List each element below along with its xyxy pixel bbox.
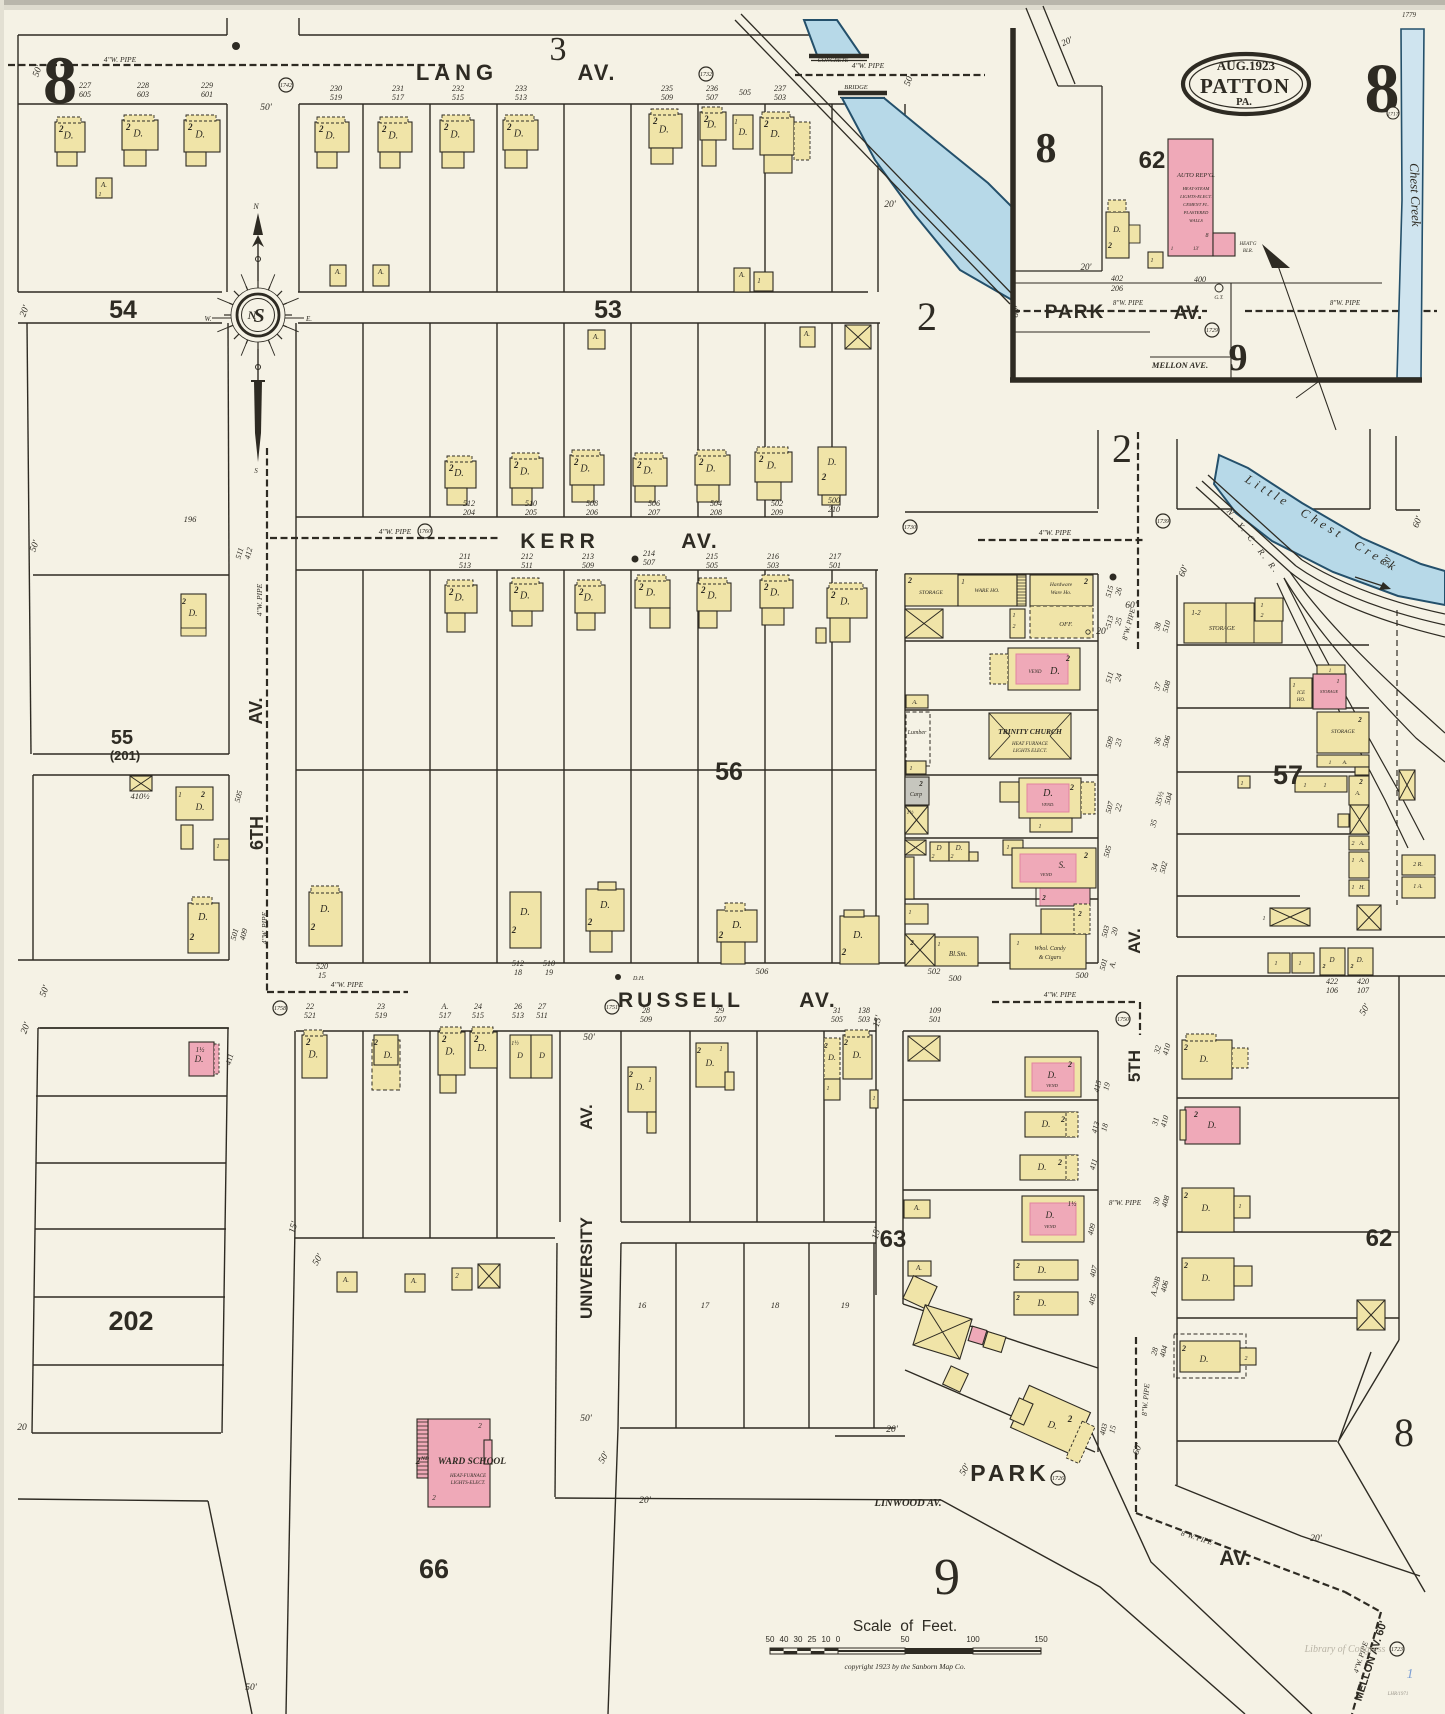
svg-text:20': 20' [884, 200, 897, 210]
svg-text:2: 2 [1083, 851, 1088, 860]
svg-text:D.: D. [1041, 1119, 1051, 1129]
svg-text:23: 23 [377, 1002, 385, 1011]
svg-text:N: N [247, 308, 258, 322]
svg-text:213: 213 [582, 552, 594, 561]
svg-text:2: 2 [189, 932, 195, 942]
svg-text:519: 519 [375, 1011, 387, 1020]
svg-text:2 R.: 2 R. [1413, 862, 1423, 868]
svg-text:500: 500 [1076, 970, 1090, 980]
svg-text:ND: ND [420, 1456, 429, 1462]
svg-text:2: 2 [318, 124, 324, 134]
svg-text:1½: 1½ [196, 1046, 206, 1054]
svg-text:HO.: HO. [1296, 698, 1305, 703]
svg-text:505: 505 [831, 1015, 843, 1024]
svg-text:Hardware: Hardware [1049, 582, 1073, 588]
svg-text:D.: D. [454, 593, 465, 604]
svg-text:10: 10 [822, 1635, 831, 1644]
svg-text:AV.: AV. [1174, 303, 1203, 324]
svg-text:237: 237 [774, 84, 787, 93]
svg-text:517: 517 [392, 93, 405, 102]
svg-text:504: 504 [710, 499, 722, 508]
svg-text:4"W. PIPE: 4"W. PIPE [1039, 528, 1072, 537]
svg-text:D.: D. [955, 844, 963, 852]
svg-text:196: 196 [184, 514, 198, 524]
svg-text:LIGHTS-ELECT.: LIGHTS-ELECT. [450, 1481, 486, 1486]
svg-text:D.: D. [1199, 1354, 1209, 1364]
svg-text:W.: W. [205, 315, 212, 323]
svg-text:20': 20' [1096, 627, 1109, 637]
svg-text:N: N [252, 202, 259, 211]
svg-text:1: 1 [648, 1076, 652, 1084]
svg-text:D.: D. [1042, 788, 1053, 799]
svg-text:2: 2 [1077, 910, 1082, 918]
svg-text:1: 1 [1241, 781, 1244, 787]
svg-text:400: 400 [1194, 275, 1206, 284]
svg-text:2: 2 [932, 854, 935, 860]
svg-text:2: 2 [415, 1456, 421, 1466]
svg-text:1: 1 [757, 277, 761, 285]
svg-text:H.: H. [1358, 885, 1365, 891]
svg-text:ICE: ICE [1296, 691, 1305, 696]
svg-text:2: 2 [1183, 1261, 1188, 1270]
svg-text:HEAT-FURNACE: HEAT-FURNACE [449, 1474, 486, 1479]
svg-text:1-2: 1-2 [1191, 609, 1201, 617]
svg-text:1: 1 [1407, 1667, 1414, 1682]
svg-text:601: 601 [201, 90, 213, 99]
svg-text:D.: D. [1047, 1070, 1057, 1080]
svg-text:1: 1 [1039, 824, 1042, 830]
svg-text:2: 2 [763, 582, 769, 592]
svg-text:CONCRETE: CONCRETE [818, 58, 849, 64]
svg-text:506: 506 [756, 966, 770, 976]
svg-text:1: 1 [1007, 845, 1010, 851]
svg-text:2: 2 [1013, 624, 1016, 630]
svg-text:1: 1 [873, 1096, 876, 1102]
svg-text:233: 233 [515, 84, 527, 93]
svg-text:205: 205 [525, 508, 537, 517]
svg-text:BRIDGE: BRIDGE [844, 84, 867, 91]
svg-text:D.: D. [387, 131, 398, 142]
svg-text:LIGHTS-ELECT.: LIGHTS-ELECT. [1179, 194, 1212, 199]
svg-text:2: 2 [187, 122, 193, 132]
svg-text:D.: D. [1037, 1298, 1047, 1308]
svg-text:20: 20 [17, 1423, 27, 1433]
svg-text:D.: D. [583, 593, 594, 604]
svg-text:A.: A. [1358, 841, 1364, 847]
svg-text:1: 1 [1151, 258, 1154, 264]
svg-text:501: 501 [929, 1015, 941, 1024]
svg-text:2: 2 [310, 922, 316, 932]
svg-text:1: 1 [938, 942, 941, 948]
svg-text:513: 513 [515, 93, 527, 102]
svg-text:D.: D. [658, 124, 669, 135]
svg-text:D.: D. [738, 127, 748, 137]
svg-text:0: 0 [836, 1635, 841, 1644]
svg-text:2: 2 [1067, 1414, 1073, 1424]
svg-text:4"W. PIPE: 4"W. PIPE [104, 55, 137, 64]
svg-text:2: 2 [1358, 778, 1363, 786]
svg-text:1717: 1717 [1388, 112, 1399, 118]
svg-text:copyright 1923 by the Sanborn: copyright 1923 by the Sanborn Map Co. [844, 1662, 965, 1671]
svg-text:6TH: 6TH [247, 816, 267, 850]
svg-text:232: 232 [452, 84, 464, 93]
svg-text:1½: 1½ [1068, 1200, 1078, 1208]
svg-text:1: 1 [1013, 613, 1016, 619]
svg-text:230: 230 [330, 84, 342, 93]
svg-text:2: 2 [441, 1034, 447, 1044]
svg-text:505: 505 [739, 88, 751, 97]
svg-text:505: 505 [706, 561, 718, 570]
svg-text:513: 513 [512, 1011, 524, 1020]
svg-text:605: 605 [79, 90, 91, 99]
svg-text:503: 503 [858, 1015, 870, 1024]
svg-text:207: 207 [648, 508, 661, 517]
svg-text:1: 1 [734, 118, 738, 126]
svg-text:D.: D. [132, 129, 143, 140]
svg-text:15: 15 [318, 971, 326, 980]
svg-text:202: 202 [108, 1306, 153, 1336]
svg-text:420: 420 [1357, 977, 1369, 986]
svg-text:TRINITY CHURCH: TRINITY CHURCH [998, 727, 1063, 736]
svg-text:1751: 1751 [606, 1005, 618, 1011]
svg-text:D.: D. [519, 467, 530, 478]
svg-text:54: 54 [109, 296, 137, 324]
svg-text:25: 25 [808, 1635, 817, 1644]
svg-text:8: 8 [43, 42, 77, 118]
svg-text:26: 26 [514, 1002, 522, 1011]
svg-text:D.: D. [705, 1058, 715, 1068]
svg-text:LINWOOD AV.: LINWOOD AV. [874, 1498, 942, 1509]
svg-text:503: 503 [774, 93, 786, 102]
svg-text:107: 107 [1357, 986, 1370, 995]
svg-text:501: 501 [829, 561, 841, 570]
svg-text:2: 2 [443, 122, 449, 132]
svg-text:1732: 1732 [700, 72, 712, 78]
svg-text:2: 2 [951, 854, 954, 860]
svg-text:D.: D. [766, 461, 777, 472]
svg-text:STORAGE: STORAGE [919, 590, 943, 596]
svg-text:402: 402 [1111, 274, 1123, 283]
svg-text:2: 2 [513, 460, 519, 470]
svg-text:55: 55 [111, 727, 133, 749]
svg-text:228: 228 [137, 81, 149, 90]
svg-text:1729: 1729 [1206, 328, 1218, 334]
svg-text:Library of Congress: Library of Congress [1304, 1644, 1386, 1655]
svg-text:24: 24 [474, 1002, 482, 1011]
svg-text:206: 206 [1111, 284, 1123, 293]
svg-text:LIGHTS ELECT.: LIGHTS ELECT. [1012, 749, 1047, 754]
svg-text:AUG.1923: AUG.1923 [1217, 58, 1276, 73]
svg-text:506: 506 [648, 499, 660, 508]
svg-text:D.: D. [1037, 1265, 1047, 1275]
svg-text:57: 57 [1273, 760, 1303, 790]
svg-text:2: 2 [1107, 241, 1112, 250]
svg-text:2: 2 [917, 294, 937, 339]
svg-text:2: 2 [1060, 1115, 1065, 1124]
svg-text:D.: D. [1201, 1203, 1211, 1213]
svg-text:502: 502 [771, 499, 783, 508]
svg-text:D.: D. [1046, 1419, 1059, 1432]
svg-text:63: 63 [880, 1226, 907, 1253]
svg-text:D.: D. [839, 597, 850, 608]
svg-text:2: 2 [1065, 654, 1070, 663]
svg-text:2: 2 [1041, 894, 1046, 902]
svg-text:A.: A. [1354, 791, 1360, 797]
svg-text:512: 512 [463, 499, 475, 508]
svg-text:150: 150 [1034, 1635, 1048, 1644]
svg-text:D.: D. [769, 588, 780, 599]
svg-text:WARE HO.: WARE HO. [975, 588, 1000, 594]
svg-text:62: 62 [1366, 1225, 1393, 1252]
svg-text:D.: D. [513, 129, 524, 140]
svg-text:2: 2 [918, 780, 923, 788]
svg-text:509: 509 [582, 561, 594, 570]
svg-text:D.: D. [1112, 225, 1121, 234]
svg-text:521: 521 [304, 1011, 316, 1020]
svg-text:1: 1 [1352, 885, 1355, 891]
svg-text:512: 512 [512, 959, 524, 968]
svg-text:AV.: AV. [1125, 928, 1144, 954]
svg-text:2: 2 [1069, 783, 1074, 792]
svg-text:40: 40 [780, 1635, 789, 1644]
svg-text:D.: D. [449, 129, 460, 140]
svg-text:2: 2 [1015, 1294, 1020, 1302]
svg-text:1: 1 [827, 1086, 830, 1092]
svg-text:A.: A. [911, 699, 918, 706]
svg-text:D: D [935, 844, 941, 852]
svg-text:206: 206 [586, 508, 598, 517]
svg-text:30: 30 [794, 1635, 803, 1644]
svg-text:G.T.: G.T. [1214, 295, 1223, 301]
svg-text:CEMENT FL.: CEMENT FL. [1183, 202, 1209, 207]
svg-text:50': 50' [245, 1683, 258, 1693]
svg-text:2: 2 [511, 925, 517, 935]
svg-text:2: 2 [1181, 1344, 1186, 1353]
svg-text:A.: A. [410, 1277, 417, 1285]
svg-text:502: 502 [928, 966, 942, 976]
svg-text:D.: D. [476, 1043, 487, 1054]
svg-text:2: 2 [628, 1070, 633, 1079]
svg-text:2: 2 [125, 122, 131, 132]
svg-text:AV.: AV. [1219, 1547, 1251, 1570]
svg-text:210: 210 [828, 505, 840, 514]
svg-text:2: 2 [448, 587, 454, 597]
svg-text:2: 2 [638, 582, 644, 592]
svg-text:VEND: VEND [1040, 872, 1052, 877]
svg-text:2: 2 [763, 119, 769, 129]
svg-text:5TH: 5TH [1125, 1050, 1144, 1082]
svg-text:1: 1 [1171, 247, 1174, 252]
svg-text:PLASTERED: PLASTERED [1183, 210, 1209, 215]
svg-text:1: 1 [1017, 941, 1020, 947]
svg-text:1: 1 [1352, 858, 1355, 864]
svg-text:500: 500 [828, 496, 840, 505]
svg-text:1: 1 [910, 766, 913, 772]
svg-text:13': 13' [1193, 247, 1200, 252]
svg-text:D.: D. [444, 1046, 455, 1057]
svg-text:2: 2 [696, 1046, 701, 1055]
svg-text:4"W. PIPE: 4"W. PIPE [255, 583, 264, 616]
svg-text:2: 2 [478, 1422, 482, 1430]
svg-text:8"W. PIPE: 8"W. PIPE [1113, 299, 1144, 307]
svg-text:4"W. PIPE: 4"W. PIPE [1044, 990, 1077, 999]
svg-text:2: 2 [200, 790, 205, 799]
svg-text:A.: A. [915, 1264, 922, 1272]
svg-text:2: 2 [1112, 426, 1132, 471]
svg-text:1: 1 [1293, 683, 1296, 689]
svg-text:1: 1 [217, 844, 220, 850]
svg-text:215: 215 [706, 552, 718, 561]
svg-text:208: 208 [710, 508, 722, 517]
svg-text:1: 1 [909, 910, 912, 916]
svg-text:A.: A. [803, 330, 810, 338]
svg-text:D.: D. [645, 588, 656, 599]
svg-text:AV.: AV. [799, 989, 837, 1012]
svg-text:STORAGE: STORAGE [1320, 689, 1339, 694]
svg-text:2: 2 [1357, 716, 1362, 724]
svg-text:1750: 1750 [1117, 1017, 1129, 1023]
svg-text:D.: D. [519, 907, 530, 918]
svg-text:217: 217 [829, 552, 842, 561]
svg-text:Chest Creek: Chest Creek [1407, 163, 1424, 227]
svg-text:A.: A. [738, 271, 745, 279]
svg-text:1779: 1779 [1402, 11, 1417, 19]
svg-text:2: 2 [373, 1038, 378, 1047]
svg-text:UNIVERSITY: UNIVERSITY [577, 1216, 596, 1319]
svg-text:E.: E. [305, 315, 312, 323]
svg-text:D.: D. [852, 930, 863, 941]
svg-text:2: 2 [1183, 1043, 1188, 1052]
svg-text:517: 517 [439, 1011, 452, 1020]
svg-text:520: 520 [316, 962, 328, 971]
svg-text:20': 20' [639, 1496, 652, 1506]
svg-text:2: 2 [587, 917, 593, 927]
svg-text:PARK: PARK [970, 1460, 1049, 1486]
svg-text:HEAT'G: HEAT'G [1239, 242, 1257, 247]
svg-text:2: 2 [830, 590, 836, 600]
svg-text:D.: D. [195, 802, 205, 812]
svg-text:STORAGE: STORAGE [1209, 626, 1235, 632]
svg-text:1: 1 [1299, 961, 1302, 967]
svg-text:503: 503 [767, 561, 779, 570]
svg-text:2: 2 [1183, 1191, 1188, 1200]
svg-text:WARD SCHOOL: WARD SCHOOL [438, 1457, 506, 1467]
svg-text:D.: D. [731, 920, 742, 931]
svg-text:507: 507 [706, 93, 719, 102]
svg-text:2: 2 [1261, 613, 1264, 619]
svg-text:2: 2 [1083, 577, 1088, 586]
svg-text:50': 50' [583, 1033, 596, 1043]
svg-text:22: 22 [306, 1002, 314, 1011]
svg-text:STORAGE: STORAGE [1331, 729, 1355, 735]
svg-text:2: 2 [758, 454, 764, 464]
svg-text:1760: 1760 [419, 529, 431, 535]
svg-text:MELLON AVE.: MELLON AVE. [1151, 360, 1208, 370]
svg-text:31: 31 [832, 1006, 841, 1015]
svg-text:D: D [538, 1051, 545, 1060]
svg-text:509: 509 [640, 1015, 652, 1024]
svg-text:603: 603 [137, 90, 149, 99]
svg-text:D.: D. [1037, 1162, 1047, 1172]
svg-text:2: 2 [432, 1494, 436, 1502]
svg-text:D.: D. [1049, 666, 1060, 677]
svg-text:53: 53 [594, 296, 622, 324]
svg-text:4"W. PIPE: 4"W. PIPE [379, 527, 412, 536]
svg-text:17: 17 [701, 1300, 710, 1310]
svg-text:2: 2 [823, 1042, 828, 1050]
svg-text:Ware Ho.: Ware Ho. [1051, 590, 1072, 596]
svg-text:Carp: Carp [910, 792, 922, 798]
svg-text:D.: D. [324, 131, 335, 142]
svg-text:2: 2 [305, 1037, 311, 1047]
svg-text:HEAT FURNACE: HEAT FURNACE [1011, 742, 1048, 747]
svg-text:D.: D. [194, 1054, 204, 1064]
svg-text:227: 227 [79, 81, 92, 90]
svg-text:2: 2 [506, 122, 512, 132]
svg-text:519: 519 [330, 93, 342, 102]
svg-text:1739: 1739 [1157, 519, 1169, 525]
svg-text:235: 235 [661, 84, 673, 93]
svg-text:LHR/1971: LHR/1971 [1387, 1692, 1409, 1697]
svg-text:VEND: VEND [1028, 670, 1041, 675]
svg-text:66: 66 [419, 1554, 449, 1584]
svg-text:2: 2 [841, 947, 847, 957]
svg-text:2: 2 [513, 585, 519, 595]
svg-text:4"W. PIPE: 4"W. PIPE [260, 911, 269, 944]
svg-text:138: 138 [858, 1006, 870, 1015]
svg-text:515: 515 [452, 93, 464, 102]
svg-text:2: 2 [1193, 1110, 1198, 1119]
svg-text:211: 211 [459, 552, 470, 561]
svg-text:8: 8 [1206, 233, 1209, 239]
svg-text:A.: A. [913, 1204, 920, 1212]
svg-text:D.: D. [642, 466, 653, 477]
svg-text:D.: D. [1045, 1210, 1055, 1220]
svg-text:4"W. PIPE: 4"W. PIPE [852, 61, 885, 70]
svg-text:A.: A. [441, 1002, 449, 1011]
svg-text:D.H.: D.H. [632, 976, 645, 982]
svg-text:2: 2 [381, 124, 387, 134]
svg-text:2: 2 [718, 930, 724, 940]
svg-text:1: 1 [178, 791, 182, 799]
svg-text:1: 1 [1329, 760, 1332, 766]
svg-text:A.: A. [592, 333, 599, 341]
svg-text:422: 422 [1326, 977, 1338, 986]
svg-text:WALLS: WALLS [1189, 218, 1203, 223]
svg-text:& Cigars: & Cigars [1039, 955, 1062, 961]
svg-text:410½: 410½ [130, 791, 150, 801]
svg-text:D.: D. [827, 457, 837, 467]
svg-text:2: 2 [1352, 841, 1355, 847]
svg-text:511: 511 [521, 561, 532, 570]
svg-text:2: 2 [821, 472, 827, 482]
svg-text:RUSSELL: RUSSELL [618, 989, 744, 1012]
svg-text:1½: 1½ [511, 1040, 519, 1047]
svg-text:2: 2 [573, 457, 579, 467]
svg-text:1723: 1723 [1391, 1647, 1403, 1653]
svg-text:2: 2 [907, 576, 912, 585]
svg-text:D.: D. [194, 129, 205, 140]
svg-text:231: 231 [392, 84, 404, 93]
svg-text:507: 507 [714, 1015, 727, 1024]
svg-text:D.: D. [307, 1049, 318, 1060]
svg-text:214: 214 [643, 549, 655, 558]
svg-text:100: 100 [966, 1635, 980, 1644]
svg-text:50': 50' [260, 103, 273, 113]
svg-text:D.: D. [1356, 956, 1364, 964]
svg-text:2: 2 [181, 597, 186, 606]
svg-text:1: 1 [1275, 961, 1278, 967]
